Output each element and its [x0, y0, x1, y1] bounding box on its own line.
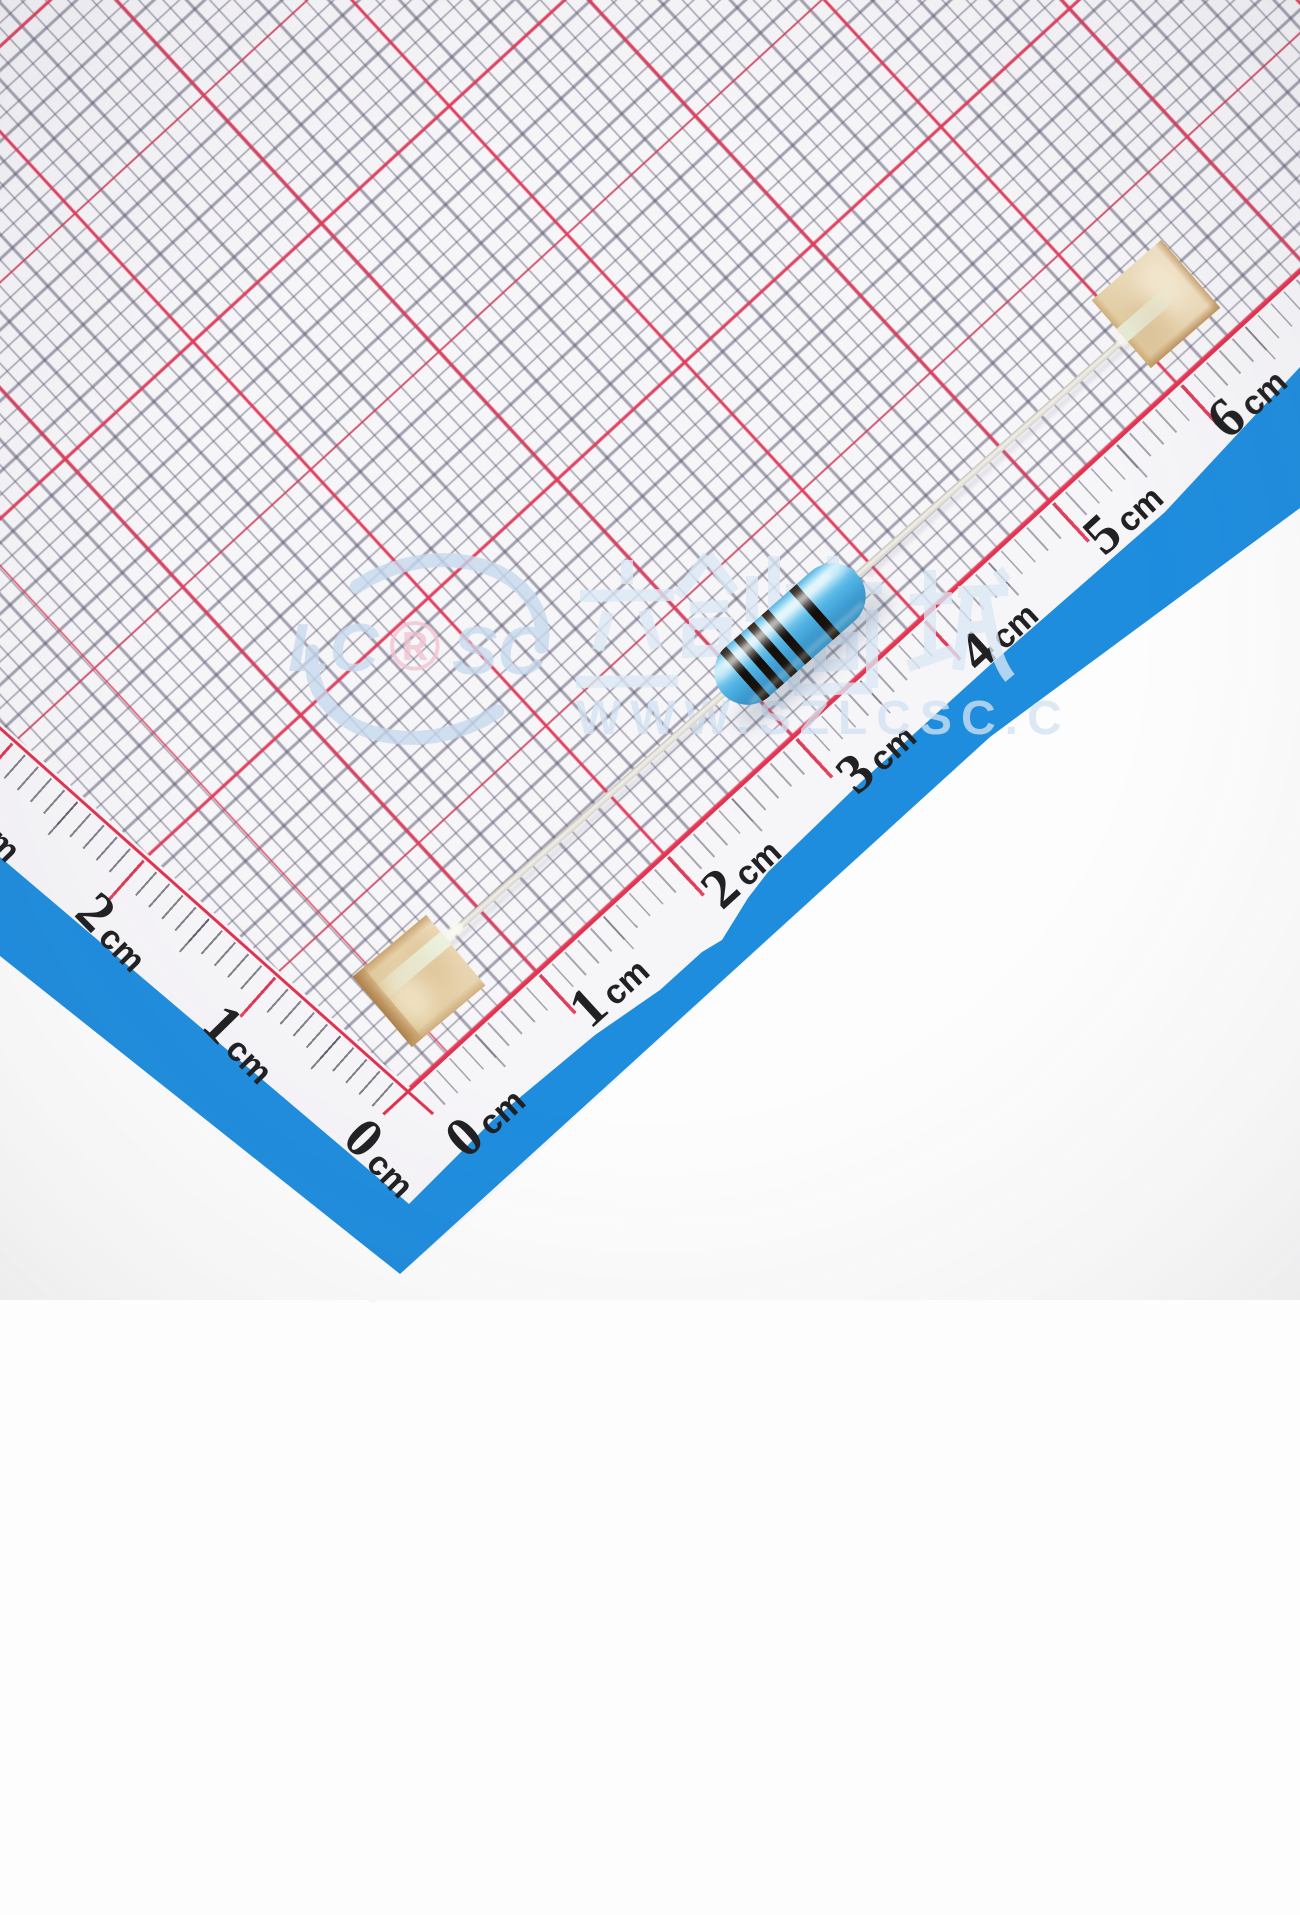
svg-text:®: ®	[389, 607, 441, 685]
svg-text:LC: LC	[288, 610, 380, 686]
svg-text:SC: SC	[452, 613, 547, 689]
svg-text:WWW.SZLCSC.C: WWW.SZLCSC.C	[576, 692, 1071, 745]
